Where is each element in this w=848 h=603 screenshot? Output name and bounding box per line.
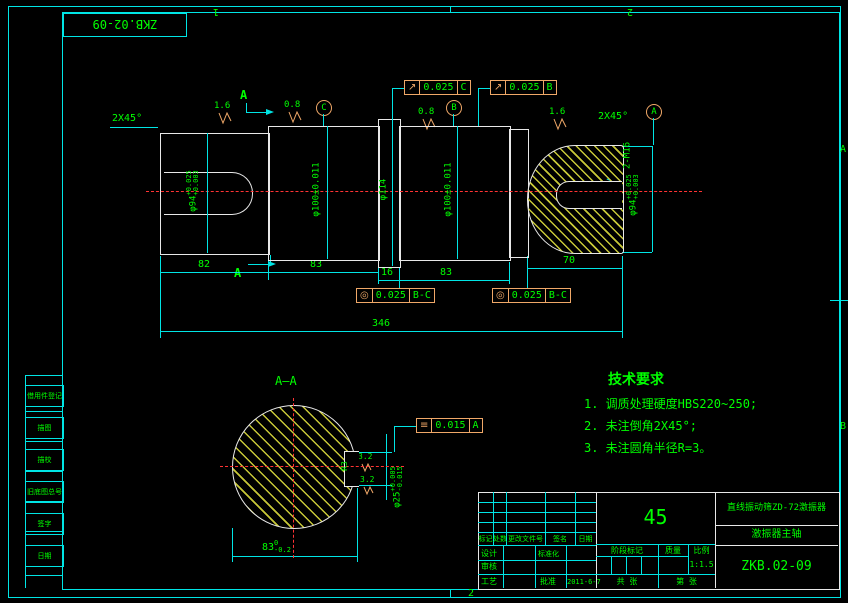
- ext-line: [622, 256, 623, 338]
- tb-stage-label: 阶段标记: [596, 546, 658, 556]
- radius-label: R3: [340, 461, 350, 471]
- tb-check-label: 审核: [481, 562, 497, 572]
- ext-line: [160, 256, 161, 338]
- tb-drawing-number: ZKB.02-09: [715, 559, 838, 574]
- fcf-leader: [392, 88, 404, 89]
- tb-line: [626, 556, 627, 574]
- ext-line: [509, 262, 510, 284]
- tb-line: [478, 560, 596, 561]
- section-letter-bottom: A: [234, 266, 241, 280]
- shaft-section-mid-left: [268, 126, 380, 261]
- runout-icon: ↗: [491, 81, 505, 94]
- dim-line-16: [378, 280, 399, 281]
- runout-icon: ↗: [405, 81, 419, 94]
- shaft-shoulder: [509, 129, 529, 258]
- roughness-value: 1.6: [549, 107, 565, 117]
- tech-req-item: 1. 调质处理硬度HBS220~250;: [584, 397, 757, 411]
- tech-req-item: 2. 未注倒角2X45°;: [584, 419, 697, 433]
- tb-line: [503, 545, 504, 588]
- tech-req-item: 3. 未注圆角半径R=3。: [584, 441, 711, 455]
- sheet-code: ZKB.02-09: [64, 17, 186, 31]
- symmetry-icon: ≡: [417, 419, 431, 432]
- sidebar-line: [25, 471, 62, 472]
- dim-line-25: [386, 434, 387, 500]
- concentricity-icon: ◎: [493, 289, 508, 302]
- fcf-datum: A: [469, 419, 482, 432]
- datum-b-stem: [453, 114, 454, 126]
- section-circle: [232, 405, 356, 529]
- dia-label-94-right: φ94+0.025+0.003: [626, 135, 640, 255]
- fcf-datum: C: [457, 81, 470, 94]
- drawing-sheet: ZKB.02-09 1 2 2 A B 2X45° 1.6 0.8 0.8 1.…: [0, 0, 848, 603]
- dim-line-83a: [268, 272, 378, 273]
- sidebar-cell: 描校: [25, 449, 64, 471]
- tb-mass-label: 质量: [658, 546, 688, 556]
- sidebar-line: [25, 501, 62, 502]
- datum-c-stem: [323, 114, 324, 126]
- tb-rev-label: 更改文件号: [506, 535, 545, 544]
- tb-product-name: 直线振动筛ZD-72激振器: [715, 503, 838, 514]
- roughness-mark-1: 1.6: [214, 93, 233, 125]
- tb-sheet-no: 第 张: [658, 577, 715, 587]
- dim-line-82: [160, 272, 268, 273]
- datum-a-circle: A: [646, 104, 662, 120]
- dia-dim-line: [327, 126, 328, 259]
- dim-line-70: [527, 268, 622, 269]
- datum-a-stem: [653, 118, 654, 145]
- ext-line: [357, 488, 358, 562]
- roughness-value: 3.2: [360, 475, 374, 484]
- fcf-leader: [392, 88, 393, 120]
- section-centerline-h: [220, 466, 404, 467]
- zone-number-top-2: 2: [627, 5, 633, 17]
- tb-process-label: 工艺: [481, 577, 497, 587]
- section-arrow-top-line: [246, 112, 268, 113]
- section-centerline-v: [293, 398, 294, 558]
- section-view-title: A—A: [275, 374, 297, 388]
- roughness-value: 0.8: [284, 100, 300, 110]
- sidebar-line: [25, 411, 62, 412]
- fcf-datum: B-C: [409, 289, 434, 302]
- sidebar-line: [25, 575, 62, 576]
- fcf-runout-b: ↗ 0.025 B: [490, 80, 557, 95]
- fcf-value: 0.025: [508, 289, 545, 302]
- fcf-runout-c: ↗ 0.025 C: [404, 80, 471, 95]
- tb-rev-label: 签名: [545, 535, 575, 544]
- datum-c-circle: C: [316, 100, 332, 116]
- tb-line: [715, 525, 838, 526]
- sidebar-line: [25, 441, 62, 442]
- zone-letter-a: A: [840, 144, 846, 156]
- keyway-slot-left: [164, 172, 253, 215]
- dim-line-346: [160, 331, 622, 332]
- tb-approve-label: 批准: [540, 577, 556, 587]
- surface-finish-icon: [363, 486, 375, 496]
- dim-83-section: 830-0.2: [262, 540, 291, 554]
- section-arrow-bottom-line: [248, 264, 270, 265]
- zone-number-top-1: 1: [213, 5, 219, 17]
- dim-line-83b: [399, 280, 509, 281]
- tb-line: [478, 502, 596, 503]
- fcf-datum: B-C: [545, 289, 570, 302]
- fcf-concentricity-2: ◎ 0.025 B-C: [492, 288, 571, 303]
- roughness-mark-4: 1.6: [549, 99, 568, 131]
- section-arrow-top-stem: [246, 103, 247, 112]
- fcf-symmetry: ≡ 0.015 A: [416, 418, 483, 433]
- dia-dim-line: [652, 146, 653, 252]
- dia-label-25: φ25+0.005-0.015: [390, 427, 404, 547]
- roughness-mark-section-2: 3.2: [360, 467, 375, 496]
- zone-letter-b: B: [840, 421, 846, 433]
- dim-83b: 83: [440, 267, 452, 279]
- tb-scale-label: 比例: [688, 546, 715, 556]
- dim-16: 16: [381, 267, 393, 279]
- tb-scale-value: 1:1.5: [688, 560, 715, 570]
- roughness-value: 3.2: [358, 452, 372, 461]
- fcf-value: 0.015: [431, 419, 468, 432]
- dia-dim-line: [457, 126, 458, 259]
- sidebar-cell: 描图: [25, 417, 64, 439]
- tb-rev-label: 日期: [575, 535, 596, 544]
- tb-line: [478, 522, 596, 523]
- tb-rev-label: 处数: [493, 535, 506, 544]
- tb-line: [478, 532, 596, 533]
- concentricity-icon: ◎: [357, 289, 372, 302]
- tb-line: [641, 556, 642, 574]
- shaft-section-mid-right: [399, 126, 511, 261]
- dim-70: 70: [563, 255, 575, 267]
- tb-standard-label: 标准化: [538, 550, 559, 559]
- roughness-mark-2: 0.8: [284, 92, 303, 124]
- dim-line-83: [232, 556, 357, 557]
- fcf-leader: [478, 88, 479, 126]
- sidebar-cell: 旧底图总号: [25, 481, 64, 503]
- dim-346: 346: [372, 318, 390, 330]
- tb-line: [478, 512, 596, 513]
- dia-label-100-left: φ100±0.011: [312, 130, 323, 250]
- section-arrow-top-head: [266, 109, 274, 115]
- sidebar-line: [25, 531, 62, 532]
- dim-82: 82: [198, 259, 210, 271]
- sidebar-line: [25, 375, 62, 376]
- tapped-hole-slot: [556, 181, 622, 209]
- fcf-concentricity-1: ◎ 0.025 B-C: [356, 288, 435, 303]
- tb-line: [478, 545, 596, 546]
- tb-line: [611, 556, 612, 574]
- tb-line: [596, 574, 715, 575]
- tech-req-title: 技术要求: [608, 372, 664, 388]
- ext-line: [378, 268, 379, 284]
- fcf-value: 0.025: [505, 81, 542, 94]
- dia-label-94-left: φ94+0.025+0.003: [186, 131, 200, 251]
- tb-design-label: 设计: [481, 549, 497, 559]
- roughness-value: 0.8: [418, 107, 434, 117]
- sidebar-cell: 借用件登记: [25, 385, 64, 407]
- fcf-value: 0.025: [372, 289, 409, 302]
- tb-line: [535, 545, 536, 588]
- surface-finish-icon: [288, 111, 303, 124]
- sidebar-cell: 日期: [25, 545, 64, 567]
- datum-b-circle: B: [446, 100, 462, 116]
- surface-finish-icon: [218, 112, 233, 125]
- dia-label-100-right: φ100±0.011: [444, 130, 455, 250]
- fcf-datum: B: [543, 81, 556, 94]
- tb-sheets-total: 共 张: [596, 577, 658, 587]
- section-letter-top: A: [240, 88, 247, 102]
- zone-tick-right: [830, 300, 848, 301]
- fcf-leader: [478, 88, 490, 89]
- fcf-value: 0.025: [419, 81, 456, 94]
- roughness-value: 1.6: [214, 101, 230, 111]
- zone-tick-bottom: [450, 590, 451, 597]
- surface-finish-icon: [553, 118, 568, 131]
- dia-dim-line: [392, 119, 393, 266]
- tb-rev-label: 标记: [478, 535, 493, 544]
- tb-material: 45: [596, 506, 715, 528]
- tb-part-name: 激振器主轴: [715, 529, 838, 541]
- tb-line: [596, 556, 688, 557]
- chamfer-left-label: 2X45°: [112, 113, 142, 125]
- sheet-code-box: ZKB.02-09: [63, 13, 187, 37]
- dia-label-114: φ114: [379, 130, 390, 250]
- zone-tick-top: [450, 6, 451, 13]
- section-arrow-bottom-head: [268, 261, 276, 267]
- tb-line: [596, 544, 715, 545]
- main-centerline: [146, 191, 702, 192]
- dia-dim-line: [207, 133, 208, 253]
- zone-number-bottom-2: 2: [468, 588, 474, 600]
- tb-line: [715, 545, 838, 546]
- tb-line: [478, 574, 596, 575]
- chamfer-left-leader: [110, 127, 158, 128]
